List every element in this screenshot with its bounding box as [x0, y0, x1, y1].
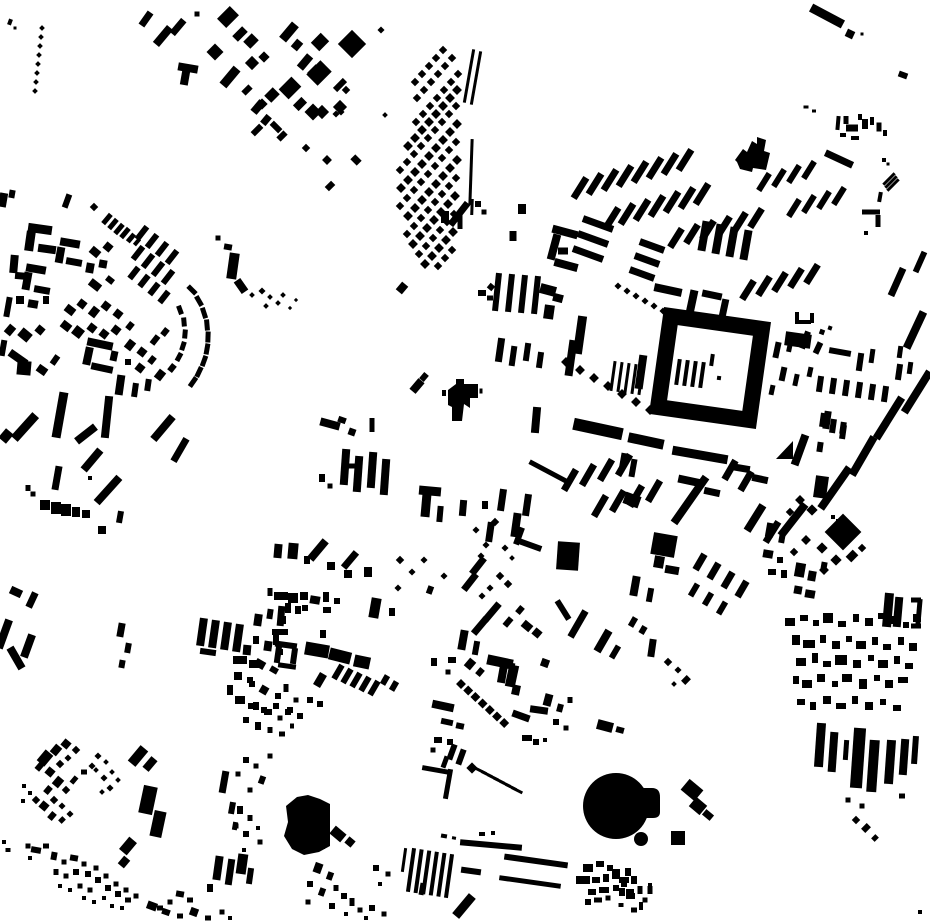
building-footprint	[334, 598, 340, 604]
building-footprint	[468, 139, 473, 205]
building-footprint	[448, 246, 456, 254]
building-footprint	[452, 102, 460, 110]
building-footprint	[424, 117, 434, 127]
building-footprint	[852, 696, 858, 704]
building-footprint-irregular	[640, 788, 660, 818]
building-footprint	[650, 302, 657, 309]
building-footprint	[154, 369, 166, 382]
building-footprint	[124, 643, 132, 654]
building-footprint	[439, 46, 447, 54]
building-footprint	[329, 903, 335, 909]
building-footprint	[835, 655, 847, 665]
building-footprint	[491, 831, 495, 835]
building-footprint	[287, 543, 298, 560]
building-footprint	[288, 306, 292, 310]
building-footprint	[638, 886, 643, 894]
building-footprint	[725, 227, 738, 258]
building-footprint	[62, 786, 70, 794]
building-footprint	[853, 614, 859, 622]
building-footprint	[816, 442, 823, 453]
building-footprint	[95, 877, 101, 883]
building-footprint	[318, 887, 326, 897]
building-footprint	[706, 561, 721, 580]
building-footprint	[264, 87, 280, 103]
building-footprint	[709, 354, 715, 366]
building-footprint	[403, 230, 411, 238]
building-footprint	[176, 305, 184, 315]
building-footprint	[200, 355, 208, 367]
building-footprint	[170, 18, 187, 36]
building-footprint	[813, 620, 819, 626]
building-footprint	[479, 832, 485, 836]
building-footprint	[151, 261, 166, 277]
building-footprint	[219, 771, 230, 794]
building-footprint	[521, 620, 534, 633]
building-footprint	[396, 556, 404, 564]
building-footprint	[720, 570, 735, 589]
building-footprint	[94, 866, 99, 871]
building-footprint	[511, 786, 523, 794]
building-footprint	[33, 79, 39, 85]
building-footprint	[518, 204, 526, 214]
building-footprint	[838, 621, 846, 627]
building-footprint	[429, 234, 437, 242]
building-footprint	[291, 39, 304, 52]
building-footprint	[124, 888, 129, 893]
building-footprint	[131, 245, 146, 261]
building-footprint	[585, 899, 591, 905]
building-footprint	[448, 227, 458, 237]
building-footprint	[38, 244, 57, 254]
building-footprint	[739, 279, 757, 301]
building-footprint	[170, 437, 189, 463]
building-footprint	[737, 470, 754, 493]
building-footprint	[270, 121, 283, 134]
building-footprint	[842, 674, 852, 682]
building-footprint	[793, 585, 802, 594]
building-footprint	[377, 26, 384, 33]
building-footprint	[452, 893, 476, 919]
building-footprint	[302, 144, 310, 152]
building-footprint	[17, 327, 33, 342]
building-footprint-irregular	[284, 795, 330, 855]
building-footprint	[279, 732, 285, 737]
building-footprint	[556, 541, 580, 570]
building-footprint	[0, 192, 8, 207]
building-footprint	[650, 532, 677, 558]
building-footprint	[885, 680, 893, 688]
building-footprint	[796, 658, 806, 666]
building-footprint	[61, 504, 71, 516]
building-footprint	[426, 102, 434, 110]
building-footprint	[294, 698, 299, 703]
building-footprint	[280, 292, 286, 298]
building-footprint	[419, 110, 427, 118]
building-footprint	[505, 274, 515, 312]
building-footprint	[70, 775, 79, 784]
building-footprint	[623, 287, 630, 294]
building-footprint	[268, 754, 273, 759]
building-footprint	[104, 874, 109, 879]
building-footprint	[883, 130, 887, 136]
building-footprint	[290, 724, 294, 729]
building-footprint	[682, 360, 690, 386]
building-footprint	[438, 135, 448, 145]
building-footprint	[844, 116, 849, 124]
building-footprint	[102, 241, 113, 252]
building-footprint	[415, 231, 425, 241]
building-footprint	[846, 550, 859, 563]
building-footprint	[835, 116, 840, 130]
building-footprint	[523, 343, 531, 362]
building-footprint	[28, 856, 32, 860]
building-footprint	[812, 110, 816, 113]
building-footprint	[427, 251, 437, 261]
building-footprint	[681, 779, 704, 801]
building-footprint	[681, 675, 691, 685]
building-footprint	[768, 569, 776, 575]
building-footprint	[120, 906, 124, 910]
building-footprint	[634, 252, 661, 267]
building-footprint	[452, 155, 462, 165]
building-footprint	[353, 456, 363, 492]
building-footprint	[268, 588, 273, 596]
building-footprint	[434, 262, 442, 270]
building-footprint	[846, 636, 852, 642]
building-footprint	[2, 840, 6, 844]
building-footprint	[204, 319, 210, 330]
building-footprint	[831, 186, 847, 206]
building-footprint	[408, 568, 415, 575]
building-footprint	[234, 278, 249, 294]
building-footprint	[341, 893, 347, 899]
building-footprint	[253, 636, 259, 644]
building-footprint	[469, 556, 487, 576]
building-footprint	[816, 190, 832, 210]
building-footprint	[596, 861, 604, 867]
building-footprint	[200, 307, 208, 319]
building-footprint	[522, 735, 532, 741]
building-footprint	[307, 538, 329, 562]
building-footprint	[8, 190, 15, 199]
building-footprint	[394, 584, 401, 591]
building-footprint	[434, 737, 442, 743]
building-footprint	[647, 639, 656, 658]
building-footprint	[251, 124, 264, 137]
building-footprint	[674, 666, 681, 673]
building-footprint	[829, 378, 837, 395]
building-footprint	[186, 284, 197, 295]
building-footprint	[3, 297, 12, 318]
building-footprint	[181, 317, 187, 326]
building-footprint	[37, 43, 43, 49]
building-footprint	[254, 658, 267, 670]
building-footprint	[478, 699, 488, 709]
building-footprint	[417, 159, 427, 169]
building-footprint	[11, 412, 39, 442]
building-footprint	[328, 648, 352, 665]
building-footprint	[105, 885, 111, 891]
building-footprint	[864, 231, 868, 235]
building-footprint	[254, 764, 259, 769]
building-footprint	[424, 134, 432, 142]
building-footprint	[26, 844, 31, 849]
building-footprint	[813, 341, 824, 354]
building-footprint	[771, 271, 789, 293]
building-footprint	[396, 166, 404, 174]
building-footprint	[522, 494, 532, 517]
building-footprint	[436, 506, 443, 522]
building-footprint	[342, 86, 350, 94]
building-footprint	[157, 906, 163, 911]
building-footprint	[850, 728, 866, 789]
building-footprint	[594, 898, 602, 903]
building-footprint	[536, 352, 544, 369]
building-footprint	[189, 907, 199, 917]
building-footprint	[431, 143, 441, 153]
building-footprint	[420, 259, 430, 269]
building-footprint	[358, 908, 363, 913]
building-footprint	[6, 848, 11, 852]
building-footprint	[882, 158, 886, 162]
building-footprint	[279, 77, 302, 100]
building-footprint	[150, 334, 161, 346]
building-footprint	[445, 127, 455, 137]
building-footprint	[47, 811, 57, 821]
building-footprint	[236, 772, 241, 777]
building-footprint	[482, 210, 487, 215]
building-footprint	[572, 245, 604, 263]
building-footprint	[830, 554, 841, 565]
building-footprint	[241, 84, 252, 95]
building-footprint	[698, 362, 706, 388]
building-footprint	[777, 557, 783, 563]
building-footprint	[248, 815, 253, 821]
building-footprint	[711, 224, 724, 255]
building-footprint	[825, 514, 862, 551]
building-footprint	[431, 109, 441, 119]
building-footprint	[327, 562, 335, 570]
building-footprint	[568, 697, 573, 703]
building-footprint	[552, 293, 564, 303]
building-footprint	[629, 266, 656, 281]
building-footprint	[182, 329, 188, 338]
building-footprint	[100, 300, 111, 311]
building-footprint	[36, 52, 42, 58]
building-footprint	[225, 859, 236, 886]
building-footprint	[816, 376, 824, 393]
building-footprint	[16, 360, 31, 375]
building-footprint	[452, 85, 462, 95]
building-footprint	[264, 709, 272, 715]
building-footprint	[586, 172, 605, 196]
building-footprint	[639, 238, 666, 253]
building-footprint	[31, 492, 36, 497]
building-footprint	[888, 267, 907, 297]
building-footprint	[16, 296, 24, 304]
building-footprint	[134, 894, 139, 899]
building-footprint	[667, 227, 685, 249]
building-footprint	[823, 696, 831, 704]
building-footprint	[862, 119, 868, 129]
building-footprint	[470, 199, 474, 215]
building-footprint	[58, 802, 65, 809]
building-footprint	[747, 207, 765, 229]
building-footprint	[207, 44, 224, 61]
building-footprint	[323, 607, 331, 613]
building-footprint	[876, 215, 881, 227]
building-footprint	[0, 428, 14, 444]
building-footprint-round	[583, 773, 649, 839]
building-footprint	[452, 174, 460, 182]
building-footprint	[626, 889, 634, 899]
building-footprint	[478, 592, 485, 599]
building-footprint	[431, 162, 439, 170]
building-footprint	[631, 397, 641, 407]
building-footprint	[320, 630, 326, 638]
building-footprint	[859, 679, 867, 689]
building-footprint	[153, 25, 173, 47]
building-footprint	[455, 722, 464, 730]
building-footprint	[436, 226, 444, 234]
building-footprint	[118, 856, 131, 869]
building-footprint	[242, 848, 246, 852]
building-footprint	[323, 592, 329, 602]
building-footprint	[396, 183, 406, 193]
building-footprint	[294, 298, 298, 302]
building-footprint	[309, 595, 320, 605]
building-footprint	[243, 33, 259, 49]
building-footprint	[865, 702, 873, 710]
building-footprint	[389, 680, 399, 692]
building-footprint	[869, 349, 876, 364]
building-footprint	[820, 635, 826, 643]
building-footprint	[793, 676, 799, 684]
building-footprint	[648, 883, 652, 889]
building-footprint	[410, 150, 418, 158]
building-footprint	[168, 900, 173, 905]
building-footprint	[235, 696, 245, 704]
building-footprint	[243, 831, 249, 837]
building-footprint	[577, 230, 609, 248]
building-footprint	[98, 259, 107, 268]
building-footprint	[482, 541, 489, 548]
building-footprint	[255, 722, 261, 730]
building-footprint	[426, 585, 434, 595]
building-footprint	[495, 338, 505, 363]
building-footprint	[60, 738, 71, 749]
building-footprint	[643, 898, 648, 903]
building-footprint	[688, 582, 700, 597]
building-footprint	[424, 151, 434, 161]
building-footprint	[903, 310, 927, 350]
building-footprint	[306, 900, 311, 905]
building-footprint	[874, 675, 880, 681]
building-footprint	[638, 625, 647, 635]
building-footprint	[599, 887, 609, 893]
building-footprint	[619, 903, 624, 907]
building-footprint	[431, 658, 437, 666]
building-footprint	[828, 732, 839, 772]
building-footprint	[248, 788, 253, 793]
building-footprint	[703, 487, 720, 497]
building-footprint	[34, 70, 40, 76]
building-footprint	[674, 359, 682, 385]
building-footprint	[504, 580, 512, 588]
building-footprint	[200, 648, 217, 656]
building-footprint	[575, 365, 585, 375]
building-footprint	[194, 295, 204, 307]
building-footprint	[43, 844, 49, 849]
building-footprint	[86, 322, 97, 333]
building-footprint	[118, 660, 125, 669]
building-footprint	[90, 203, 98, 211]
building-footprint	[603, 874, 609, 882]
building-footprint	[35, 61, 41, 67]
building-footprint	[629, 575, 640, 596]
building-footprint	[412, 118, 420, 126]
building-footprint	[287, 707, 293, 713]
building-footprint	[878, 660, 888, 668]
building-footprint	[116, 622, 125, 637]
building-footprint	[50, 796, 58, 804]
building-footprint	[878, 613, 884, 619]
building-footprint	[417, 195, 427, 205]
building-footprint	[125, 898, 131, 903]
building-footprint	[756, 172, 772, 192]
building-footprint	[433, 94, 441, 102]
building-footprint	[472, 641, 480, 656]
building-footprint	[631, 160, 650, 184]
building-footprint	[452, 119, 462, 129]
building-footprint	[431, 126, 439, 134]
building-footprint	[441, 235, 451, 245]
building-footprint	[116, 511, 124, 524]
building-footprint	[832, 641, 840, 649]
building-footprint	[445, 110, 453, 118]
building-footprint	[438, 171, 448, 181]
building-footprint	[367, 452, 377, 488]
building-footprint	[364, 916, 368, 920]
building-footprint	[44, 766, 55, 777]
building-footprint	[300, 592, 308, 600]
building-footprint	[846, 798, 851, 803]
building-footprint	[794, 562, 806, 578]
building-footprint	[855, 382, 863, 399]
building-footprint	[751, 474, 768, 484]
building-footprint	[671, 681, 677, 687]
building-footprint	[417, 178, 425, 186]
building-footprint	[457, 629, 468, 650]
building-footprint	[110, 350, 119, 361]
building-footprint	[326, 871, 334, 881]
building-footprint	[911, 624, 921, 629]
building-footprint	[448, 657, 456, 663]
building-footprint	[32, 796, 40, 804]
building-footprint	[787, 267, 805, 289]
building-footprint	[98, 526, 106, 534]
building-footprint	[646, 156, 665, 180]
building-footprint	[431, 198, 439, 206]
building-footprint	[249, 681, 255, 687]
building-footprint	[115, 375, 126, 396]
building-footprint	[572, 418, 623, 440]
building-footprint	[846, 125, 858, 132]
building-footprint	[442, 390, 446, 396]
building-footprint	[547, 233, 561, 260]
building-footprint	[175, 352, 184, 362]
building-footprint	[72, 746, 80, 754]
